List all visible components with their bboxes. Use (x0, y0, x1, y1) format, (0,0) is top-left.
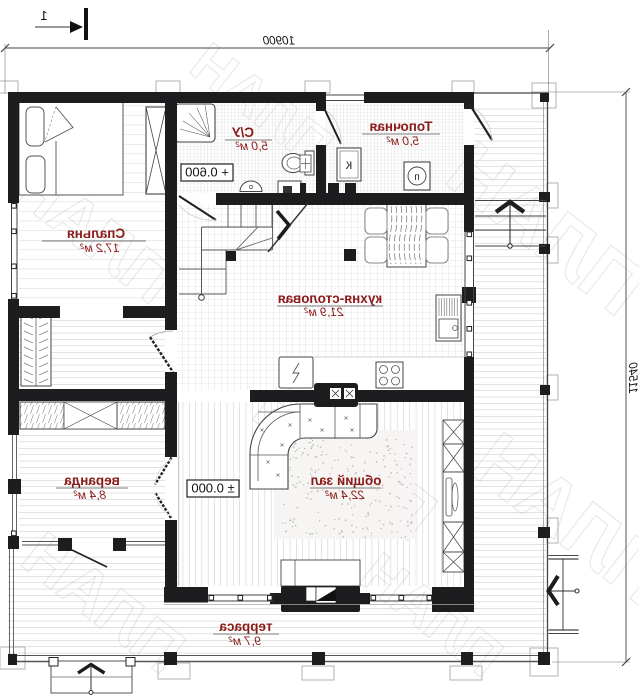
svg-text:5,0 м²: 5,0 м² (386, 134, 419, 148)
svg-text:8,4 м²: 8,4 м² (73, 488, 106, 502)
svg-text:общий зал: общий зал (311, 473, 382, 488)
svg-text:Спальня: Спальня (67, 226, 125, 241)
svg-text:терраса: терраса (219, 619, 273, 634)
svg-text:21,9 м²: 21,9 м² (304, 305, 345, 319)
svg-text:11540: 11540 (626, 362, 638, 394)
svg-text:К: К (345, 160, 352, 172)
svg-text:п: п (414, 172, 419, 183)
svg-text:5,0 м²: 5,0 м² (235, 139, 268, 153)
svg-text:1: 1 (40, 8, 47, 23)
svg-text:С/У: С/У (231, 125, 254, 140)
svg-text:17,2 м²: 17,2 м² (80, 241, 120, 255)
svg-text:веранда: веранда (64, 473, 120, 488)
svg-text:Топочная: Топочная (369, 119, 432, 134)
svg-text:10900: 10900 (262, 36, 295, 48)
svg-text:кухня-столовая: кухня-столовая (278, 291, 382, 306)
svg-text:± 0.000: ± 0.000 (191, 481, 234, 496)
svg-text:+ 0.600: + 0.600 (185, 165, 229, 180)
svg-text:9,7 м²: 9,7 м² (228, 634, 261, 648)
svg-text:22,4 м²: 22,4 м² (325, 488, 366, 502)
